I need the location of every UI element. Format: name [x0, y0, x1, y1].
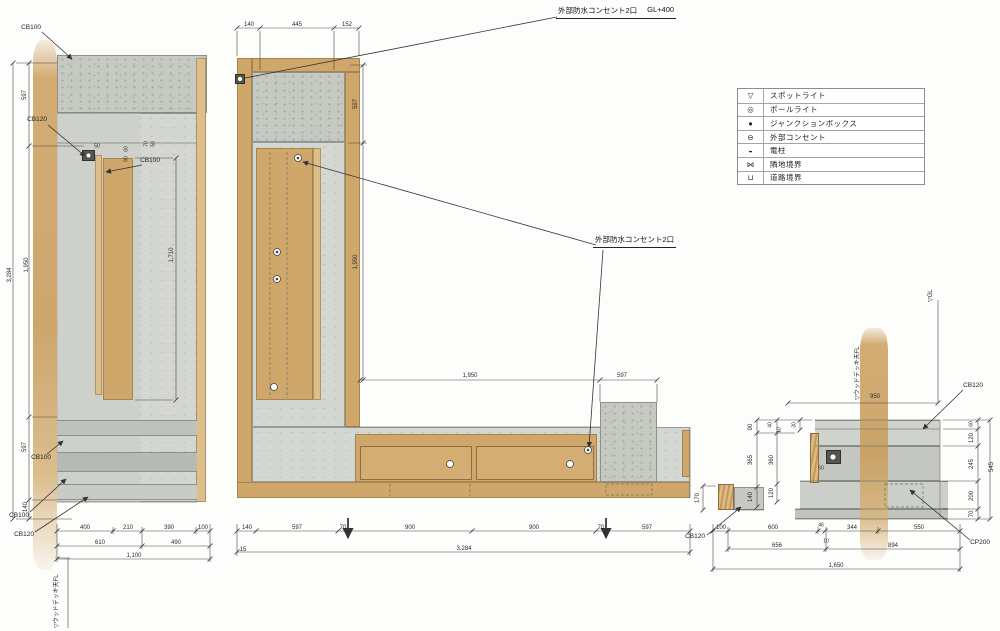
- dim-label: 597: [642, 525, 652, 531]
- part-label-cp200: CP200: [970, 540, 990, 547]
- utility-pole-icon: ◒: [738, 144, 764, 157]
- dim-label: 3,284: [456, 546, 471, 552]
- note-text: 外部防水コンセント2口: [595, 234, 674, 245]
- dim-label: 90: [748, 424, 754, 431]
- dim-label: 490: [171, 540, 181, 546]
- dim-label: 545: [989, 462, 995, 472]
- legend-label: 道路境界: [764, 172, 802, 183]
- dim-label: 15: [240, 547, 247, 553]
- dim-label: 597: [22, 90, 28, 100]
- part-label-cb100: CB100: [140, 158, 160, 165]
- legend-label: 外部コンセント: [764, 132, 826, 143]
- dim-label: 70: [969, 511, 975, 518]
- dim-label: 344: [847, 525, 857, 531]
- legend-row: ⊔道路境界: [738, 171, 924, 185]
- dim-label: 445: [292, 22, 302, 28]
- deck-level-label-right: ▽ウッドデッキ天FL: [852, 346, 861, 400]
- dim-label: 894: [888, 543, 898, 549]
- part-label-cb100: CB100: [9, 513, 29, 520]
- dim-label: 900: [405, 525, 415, 531]
- deck-level-label-left: ▽ウッドデッキ天FL: [51, 574, 60, 628]
- legend-row: ▽スポットライト: [738, 89, 924, 103]
- part-label-cb100: CB100: [31, 455, 51, 462]
- dim-label: 100: [716, 525, 726, 531]
- dim-label: 597: [292, 525, 302, 531]
- site-boundary-icon: ⋈: [738, 158, 764, 171]
- legend-label: ジャンクションボックス: [764, 118, 857, 129]
- dim-label: 1,710: [169, 247, 175, 262]
- dim-label: 600: [768, 525, 778, 531]
- junction-box-icon: ●: [738, 117, 764, 130]
- dim-label: 120: [769, 488, 775, 498]
- dashed-lines: [270, 152, 923, 507]
- dim-label: 1,950: [24, 257, 30, 272]
- dim-label: 1,650: [828, 563, 843, 569]
- dim-label: 200: [969, 491, 975, 501]
- dim-label: 152: [342, 22, 352, 28]
- legend-row: ◒電柱: [738, 143, 924, 157]
- dim-label: 1,950: [462, 373, 477, 379]
- dim-label: 10: [778, 427, 783, 433]
- outlet-symbols: [86, 76, 836, 467]
- dim-label: 70: [598, 525, 605, 531]
- dim-label: 365: [748, 455, 754, 465]
- dim-label: 60: [125, 146, 130, 152]
- dim-label: 170: [695, 493, 701, 503]
- road-boundary-icon: ⊔: [738, 172, 764, 185]
- gl-level-label: ▽GL: [927, 289, 934, 302]
- note-outlet-top: 外部防水コンセント2口 GL+400: [556, 5, 676, 19]
- part-label-cb120: CB120: [685, 534, 705, 541]
- dim-label: 400: [80, 525, 90, 531]
- legend-label: 隣地境界: [764, 159, 802, 170]
- dim-label: 550: [914, 525, 924, 531]
- dim-label: 50: [94, 145, 100, 150]
- dim-label: 70: [145, 141, 150, 147]
- pole-light-icon: ◎: [738, 104, 764, 117]
- dim-label: 60: [970, 421, 975, 427]
- drawing-sheet: ▽スポットライト ◎ポールライト ●ジャンクションボックス ⊖外部コンセント ◒…: [0, 0, 1000, 631]
- part-label-cb120: CB120: [963, 383, 983, 390]
- dim-label: 46: [818, 524, 824, 529]
- outlet-icon: ⊖: [738, 131, 764, 144]
- part-label-cb100: CB100: [21, 25, 41, 32]
- dim-label: 140: [748, 492, 754, 502]
- dim-label: 70: [340, 525, 347, 531]
- legend-label: スポットライト: [764, 90, 826, 101]
- dim-label: 10: [823, 540, 829, 545]
- note-text: 外部防水コンセント2口: [558, 5, 637, 16]
- part-label-cb120: CB120: [14, 532, 34, 539]
- dim-label: 3,284: [7, 267, 13, 282]
- dim-label: 210: [123, 525, 133, 531]
- dim-label: 597: [353, 99, 359, 109]
- dim-label: 597: [22, 442, 28, 452]
- legend-table: ▽スポットライト ◎ポールライト ●ジャンクションボックス ⊖外部コンセント ◒…: [737, 88, 925, 185]
- note-level: GL+400: [647, 5, 674, 16]
- part-label-cb120: CB120: [27, 117, 47, 124]
- note-outlet-mid: 外部防水コンセント2口: [593, 234, 676, 248]
- dim-label: 90: [125, 156, 130, 162]
- dim-label: 900: [529, 525, 539, 531]
- level-marks: [348, 518, 606, 538]
- dim-label: 100: [198, 525, 208, 531]
- legend-row: ◎ポールライト: [738, 103, 924, 117]
- dim-label: 1,100: [126, 553, 141, 559]
- dim-label: 1,950: [353, 254, 359, 269]
- dim-label: 390: [164, 525, 174, 531]
- dim-label: 140: [244, 22, 254, 28]
- legend-label: ポールライト: [764, 104, 818, 115]
- legend-row: ●ジャンクションボックス: [738, 116, 924, 130]
- legend-row: ⊖外部コンセント: [738, 130, 924, 144]
- dim-label: 30: [793, 422, 798, 428]
- dim-label: 50: [152, 141, 157, 147]
- legend-row: ⋈隣地境界: [738, 157, 924, 171]
- dim-label: 120: [969, 433, 975, 443]
- dim-label: 610: [95, 540, 105, 546]
- dim-label: 140: [23, 502, 29, 512]
- dim-label: 950: [870, 394, 880, 400]
- legend-label: 電柱: [764, 145, 786, 156]
- dim-label: 40: [769, 422, 774, 428]
- dim-label: 50: [818, 467, 824, 472]
- spotlight-icon: ▽: [738, 89, 764, 103]
- dim-label: 597: [617, 373, 627, 379]
- dim-label: 245: [969, 459, 975, 469]
- dim-label: 140: [242, 525, 252, 531]
- dim-label: 656: [772, 543, 782, 549]
- dim-label: 360: [769, 455, 775, 465]
